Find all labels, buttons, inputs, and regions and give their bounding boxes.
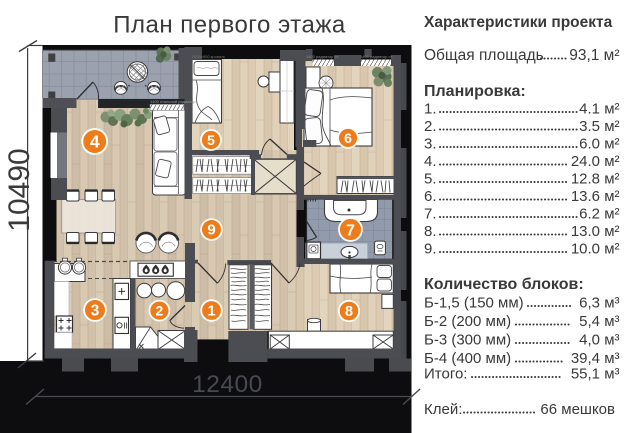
svg-text:3: 3 [91,303,100,320]
svg-text:5,4 м³: 5,4 м³ [579,313,619,330]
svg-text:Общая площадь: Общая площадь [424,47,544,64]
svg-text:6,3 м³: 6,3 м³ [579,295,619,312]
svg-text:6: 6 [344,130,352,146]
svg-text:8: 8 [345,304,353,320]
svg-text:12400: 12400 [192,371,263,398]
svg-text:6.: 6. [424,188,437,205]
svg-text:8.: 8. [424,223,437,240]
svg-text:10490: 10490 [3,148,36,231]
svg-text:24.0 м²: 24.0 м² [571,153,620,170]
svg-text:5.: 5. [424,171,437,188]
svg-text:2: 2 [156,303,164,319]
svg-text:39,4 м³: 39,4 м³ [571,350,620,367]
svg-text:Характеристики проекта: Характеристики проекта [424,14,613,31]
svg-text:1400 стальной радиатор: 1400 стальной радиатор [150,99,196,104]
svg-text:План первого этажа: План первого этажа [113,12,346,39]
svg-text:5: 5 [207,132,215,148]
svg-text:Клей:: Клей: [424,401,462,418]
svg-text:3.: 3. [424,136,437,153]
svg-text:Б-3 (300 мм): Б-3 (300 мм) [424,332,511,349]
svg-text:66 мешков: 66 мешков [540,401,615,418]
svg-text:3.5 м²: 3.5 м² [579,118,619,135]
svg-text:4.1 м²: 4.1 м² [579,101,619,118]
svg-text:10.0 м²: 10.0 м² [571,241,620,258]
svg-text:4.: 4. [424,153,437,170]
svg-text:13.6 м²: 13.6 м² [571,188,620,205]
svg-text:Б-2 (200 мм): Б-2 (200 мм) [424,313,511,330]
svg-text:1.: 1. [424,101,437,118]
svg-text:Итого:: Итого: [424,366,467,383]
svg-text:1400 радиатор ст.: 1400 радиатор ст. [306,54,339,59]
svg-text:55,1 м³: 55,1 м³ [571,366,620,383]
svg-text:2.: 2. [424,118,437,135]
svg-text:1400 радиатор ст.: 1400 радиатор ст. [360,54,393,59]
svg-text:Б-4 (400 мм): Б-4 (400 мм) [424,350,511,367]
svg-text:6.2 м²: 6.2 м² [579,206,619,223]
svg-text:4,0 м³: 4,0 м³ [579,332,619,349]
svg-text:1: 1 [207,304,215,320]
svg-text:Б-1,5 (150 мм): Б-1,5 (150 мм) [424,295,524,312]
svg-text:93,1 м²: 93,1 м² [569,47,619,64]
svg-text:13.0 м²: 13.0 м² [571,223,620,240]
svg-text:Планировка:: Планировка: [424,83,526,100]
svg-text:6.0 м²: 6.0 м² [579,136,619,153]
svg-text:2000х900 кровать: 2000х900 кровать [192,54,225,59]
svg-text:Количество блоков:: Количество блоков: [424,276,584,293]
svg-text:9.: 9. [424,241,437,258]
svg-text:7: 7 [346,222,355,239]
svg-text:4: 4 [90,132,100,152]
svg-text:9: 9 [207,222,215,239]
svg-text:12.8 м²: 12.8 м² [571,171,620,188]
svg-text:7.: 7. [424,206,437,223]
